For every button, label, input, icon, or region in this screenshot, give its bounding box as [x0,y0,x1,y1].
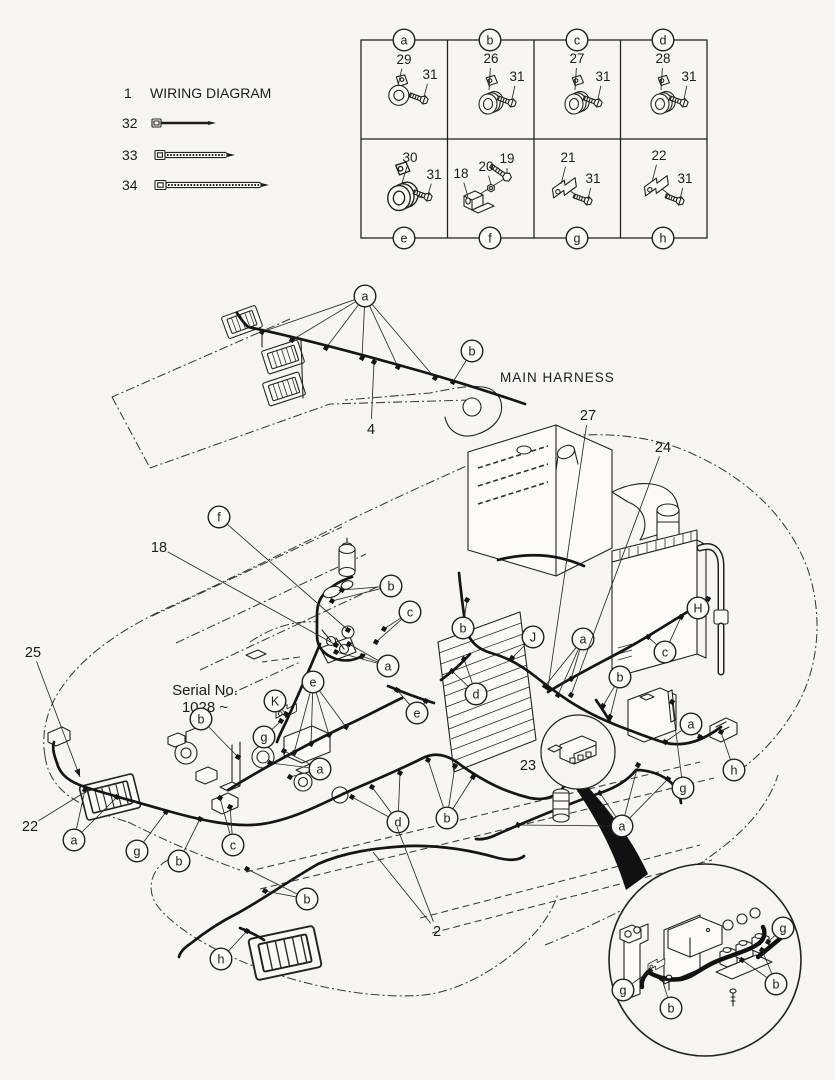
part-number-text: 21 [560,150,575,165]
callout-b: b [329,575,402,604]
leader-line [292,302,355,340]
cable-tie-34-art [155,181,269,190]
callout-letter: g [620,983,627,997]
part-number-2: 2 [373,827,441,940]
part-number-text: 18 [151,540,167,556]
leader-line [144,812,166,842]
part-number-31: 31 [595,69,610,99]
callout-letter: e [310,675,317,689]
leader-line [376,620,401,642]
callout-letter: b [487,33,494,47]
part-number-text: 31 [509,69,524,84]
boom-light-icon [262,372,306,407]
callout-f: f [479,227,501,249]
part-number-text: 18 [453,166,468,181]
leader-line [168,552,336,645]
part-number-text: 20 [478,159,493,174]
fuel-filter [339,538,355,577]
callout-letter: c [230,838,236,852]
tie-number-34: 34 [122,177,138,193]
callout-letter: b [460,621,467,635]
callout-c: c [373,601,421,645]
callout-letter: J [530,630,536,644]
leader-line [229,931,247,951]
relay-magnifier [541,715,615,789]
leader-line [630,779,668,818]
harness-clamp-mark [287,774,293,780]
part-number-25: 25 [25,645,80,777]
callout-letter: e [401,231,408,245]
legend-item-number: 1 [124,85,132,101]
callout-g: g [126,809,169,862]
part-number-20: 20 [478,159,493,185]
cable-tie-33-art [155,151,235,160]
harness-clamp-mark [349,794,355,800]
inset-detail [609,864,801,1056]
callout-letter: b [444,811,451,825]
leader-line [320,691,346,727]
callout-letter: H [693,601,702,615]
callout-letter: b [388,579,395,593]
callout-letter: a [688,717,695,731]
callout-b: b [479,29,501,51]
leader-line [684,86,687,99]
callout-letter: a [362,289,369,303]
part-number-text: 30 [402,150,417,165]
part-number-text: 31 [585,171,600,186]
part-number-text: 22 [651,148,666,163]
leader-line [262,300,354,332]
callout-h: h [652,227,674,249]
callout-letter: e [414,706,421,720]
part-number-text: 19 [499,151,514,166]
callout-letter: f [488,231,492,245]
part-number-23: 23 [520,758,536,774]
callout-letter: a [619,819,626,833]
leader-line [449,766,455,807]
callout-d: d [652,29,674,51]
part-number-text: 27 [580,408,596,424]
callout-letter: g [680,781,687,795]
fuse-boxes [196,767,240,814]
front-connector [48,727,70,746]
leader-line [39,789,90,821]
part-number-text: 22 [22,819,38,835]
legend: 1 WIRING DIAGRAM 32 33 34 [122,85,271,193]
legend-title: WIRING DIAGRAM [150,85,271,101]
battery-box [628,688,676,742]
callout-b: b [425,757,476,829]
callout-letter: h [731,763,738,777]
tie-number-32: 32 [122,115,138,131]
callout-letter: K [271,694,280,708]
part-number-31: 31 [585,171,600,199]
callout-letter: a [71,833,78,847]
harness-clamp-mark [597,790,603,796]
leader-line [371,362,374,419]
part-number-text: 23 [520,758,536,774]
part-number-text: 27 [569,51,584,66]
leader-line [625,765,638,815]
callout-b: b [450,340,483,385]
harness-clamp-mark [381,626,387,632]
leader-line [326,305,358,348]
leader-line [428,760,443,807]
harness-clamp-mark [369,784,375,790]
main-harness-label: MAIN HARNESS [500,370,615,385]
callout-letter: f [217,510,221,524]
callout-letter: g [574,231,581,245]
callout-letter: d [395,815,402,829]
part-number-22: 22 [651,148,666,182]
leader-line [397,827,433,922]
parts-diagram-page: 1 WIRING DIAGRAM 32 33 34 [0,0,835,1080]
callout-c: c [566,29,588,51]
callout-letter: b [469,344,476,358]
part-number-text: 31 [426,167,441,182]
part-number-text: 25 [25,645,41,661]
callout-b: b [168,816,203,872]
bumper-harness [179,846,524,957]
water-separator [553,789,569,822]
part-number-text: 4 [367,422,375,438]
part-number-18: 18 [151,540,339,648]
callout-letter: h [218,952,225,966]
leader-line [352,797,388,817]
leader-line [518,825,611,826]
callout-letter: a [385,659,392,673]
leader-line [209,727,238,757]
part-number-18: 18 [453,166,468,197]
harness-clamp-mark [568,692,574,698]
parts-table [361,40,707,238]
part-number-text: 29 [396,52,411,67]
callout-letter: c [574,33,580,47]
leader-line [453,361,466,382]
callout-h: h [210,928,250,970]
callout-letter: g [780,921,787,935]
callout-a: a [393,29,415,51]
engine-compartment [339,425,737,772]
leader-line [372,787,391,813]
part-number-31: 31 [681,69,696,99]
callout-letter: d [473,687,480,701]
callout-letter: a [317,762,324,776]
part-number-text: 24 [655,440,671,456]
serial-note-line1: Serial No. [172,682,238,699]
harness-clamp-mark [329,598,335,604]
leader-line [362,307,364,358]
callout-g: g [566,227,588,249]
part-number-text: 31 [677,171,692,186]
part-number-text: 31 [422,67,437,82]
part-number-31: 31 [426,167,441,195]
callout-letter: c [407,605,413,619]
callout-letter: b [617,670,624,684]
callout-letter: b [176,854,183,868]
part-number-text: 28 [655,51,670,66]
boom-light-icon [261,340,305,375]
leader-line [424,84,427,97]
callout-H: H [687,596,711,619]
callout-letter: b [773,977,780,991]
callout-letter: g [261,730,268,744]
leader-arrowhead [74,768,80,777]
harness-clamp-mark [197,816,203,822]
leader-line [598,86,601,99]
callout-e: e [394,687,429,724]
detail-pointer-wedge [572,776,648,890]
left-headlight-icon [79,773,141,820]
leader-line [230,807,232,834]
leader-line [184,819,200,851]
leader-line [465,600,467,617]
callout-letter: b [668,1001,675,1015]
callout-letter: a [401,33,408,47]
tie-number-33: 33 [122,147,138,163]
callout-letter: c [662,645,668,659]
part-number-text: 31 [595,69,610,84]
leader-line [270,763,309,768]
callout-letter: a [580,632,587,646]
leader-line [37,661,80,777]
part-number-31: 31 [509,69,524,99]
leader-line [672,702,682,777]
part-number-31: 31 [422,67,437,97]
part-number-text: 26 [483,51,498,66]
leader-line [453,777,473,808]
leader-line [603,687,614,706]
cable-tie-32-art [152,119,216,127]
callout-letter: b [304,892,311,906]
leader-line [512,86,515,99]
callout-letter: d [660,33,667,47]
bumper-headlight-icon [248,926,322,981]
callout-letter: b [198,712,205,726]
leader-line [558,650,578,695]
harness-clamp-mark [635,762,641,768]
leader-line [373,852,431,923]
callout-letter: h [660,231,667,245]
diagram-canvas: 1 WIRING DIAGRAM 32 33 34 [0,0,835,1080]
callout-e: e [393,227,415,249]
part-number-text: 2 [433,924,441,940]
harness-clamp-mark [464,597,470,603]
part-number-text: 31 [681,69,696,84]
part-number-31: 31 [677,171,692,199]
leader-line [228,525,348,630]
callout-letter: g [134,844,141,858]
leader-line [489,176,491,185]
leader-line [398,773,400,811]
